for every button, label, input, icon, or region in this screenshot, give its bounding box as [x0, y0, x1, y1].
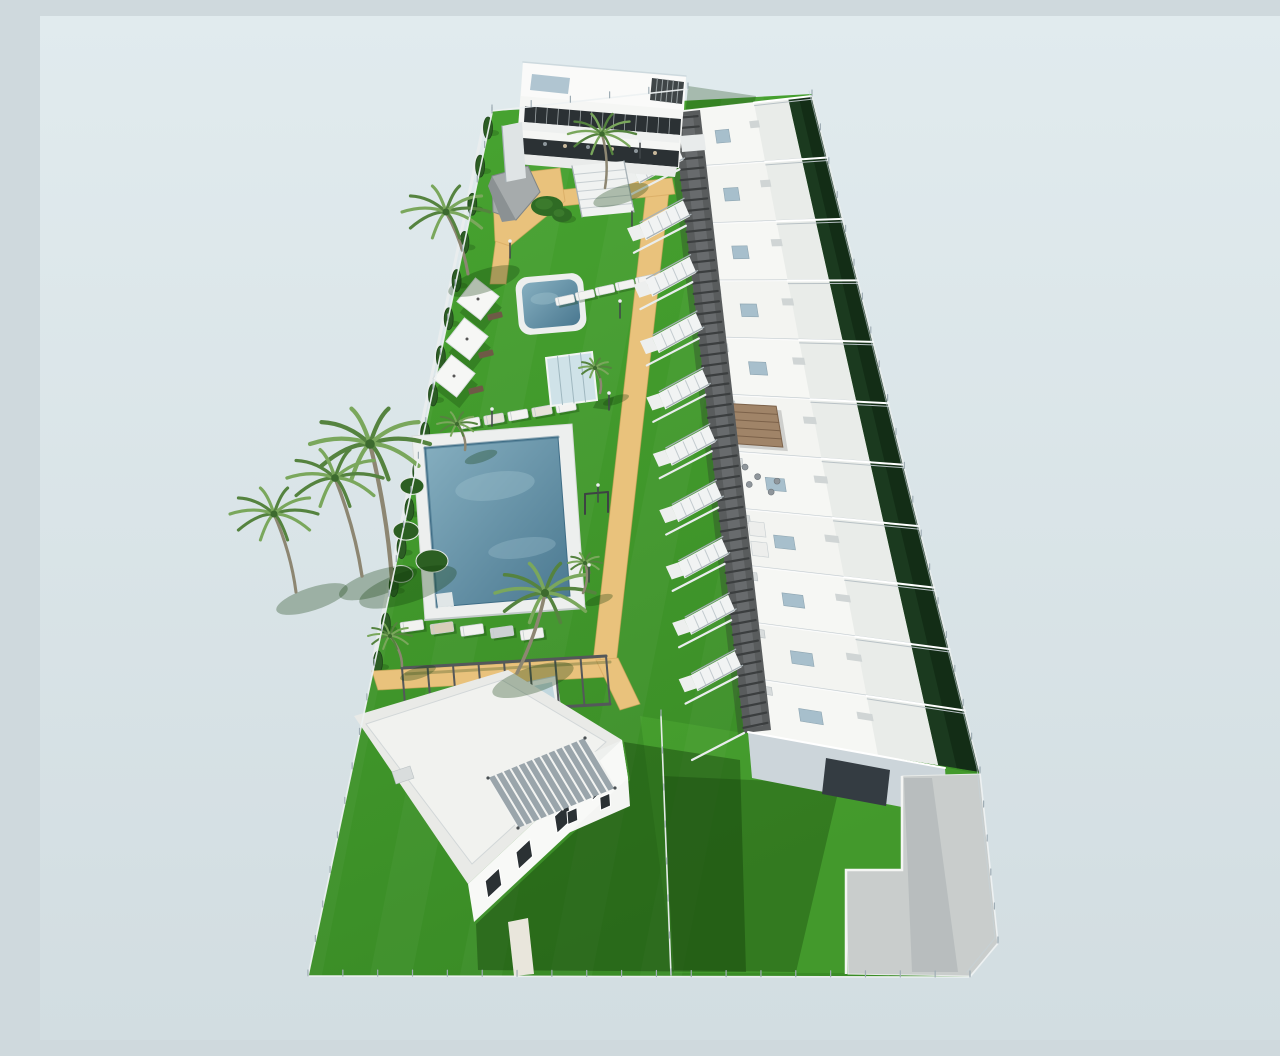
- roof-skylight: [723, 187, 740, 201]
- light-pole: [587, 563, 591, 567]
- roof-skylight: [748, 362, 767, 375]
- terrace-furniture: [746, 481, 752, 487]
- roof-skylight: [715, 129, 731, 143]
- light-pole: [508, 239, 512, 243]
- terrace-furniture: [755, 474, 761, 480]
- light-pole: [618, 299, 622, 303]
- terrace-furniture: [742, 464, 748, 470]
- architectural-render: [40, 16, 1280, 1040]
- roof-skylight: [782, 593, 805, 608]
- roof-skylight: [774, 535, 796, 550]
- roof-skylight: [740, 304, 758, 317]
- light-pole: [490, 407, 494, 411]
- terrace-furniture: [768, 489, 774, 495]
- site-plan-svg: [40, 16, 1280, 1040]
- light-pole: [630, 207, 634, 211]
- planter: [393, 522, 419, 540]
- light-pole: [638, 139, 642, 143]
- roof-skylight: [732, 246, 749, 259]
- terrace-furniture: [774, 478, 780, 484]
- light-pole: [607, 391, 611, 395]
- light-pole: [596, 483, 600, 487]
